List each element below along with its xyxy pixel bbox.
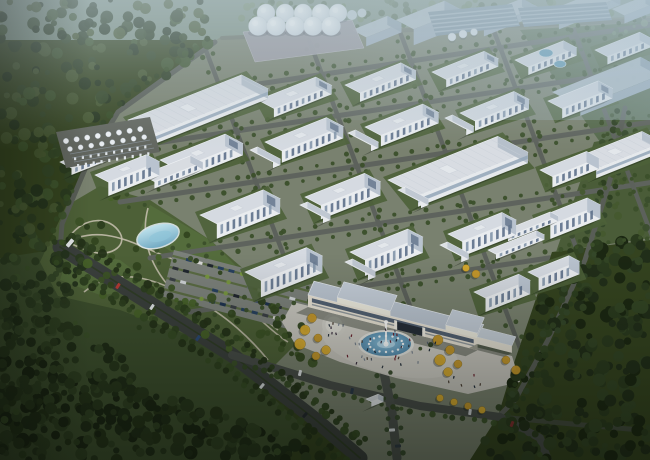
aerial-rendering-viewport (0, 0, 650, 460)
industrial-park-aerial-scene (0, 0, 650, 460)
atmosphere-overlays (0, 0, 650, 460)
